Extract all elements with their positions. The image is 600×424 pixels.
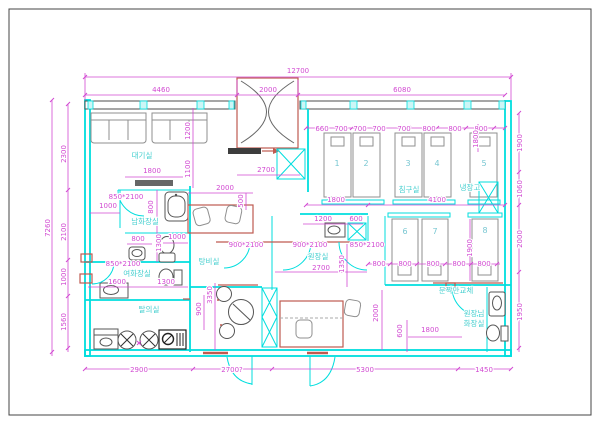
room-label-director-toilet: 원장님: [464, 308, 485, 318]
dim-left-seg: 2100: [60, 223, 68, 241]
bed-number: 1: [334, 159, 339, 168]
office-desk: [280, 299, 361, 347]
room-label-refrigerator: 냉장고: [460, 182, 481, 192]
dim-right-seg: 1900: [516, 134, 524, 152]
duct-box: [348, 223, 366, 240]
folding-partition: [262, 288, 277, 347]
sofa: [152, 113, 207, 143]
dim-mens: 800: [131, 235, 144, 243]
washing-machine: [140, 331, 158, 349]
cabinet: [94, 329, 118, 349]
dim-bed-mid: 800: [398, 260, 411, 268]
office-sink: [325, 223, 345, 237]
room-label-director-office: 원장실: [308, 251, 329, 261]
bathtub: [165, 192, 188, 221]
dim-mens-v: 1300: [155, 234, 163, 252]
room-label-waiting: 대기실: [132, 150, 153, 160]
dim-office-door: 900*2100: [293, 241, 328, 249]
dim-womens-door: 850*2100: [106, 260, 141, 268]
room-label-director-toilet: 화장실: [464, 318, 485, 328]
room-label-womens-toilet: 여화장실: [123, 268, 151, 278]
dim-bed-mid: 800: [372, 260, 385, 268]
dim-mens-v: 800: [147, 200, 155, 213]
dim-desk: 2000: [216, 184, 234, 192]
dim-bed-top: 700: [372, 125, 385, 133]
dim-toilet: 1800: [421, 326, 439, 334]
dim-womens: 1600: [108, 278, 126, 286]
dim-right-seg: 1950: [516, 303, 524, 321]
dim-bedding: 4100: [428, 196, 446, 204]
dim-left-seg: 2300: [60, 145, 68, 163]
room-label-mens-toilet: 남화장실: [131, 216, 159, 226]
dim-hall-v: 2000: [372, 304, 380, 322]
dim-top-right: 6080: [393, 86, 411, 94]
dim-bed-top: 800: [448, 125, 461, 133]
dim-bed-mid: 800: [426, 260, 439, 268]
dim-left-overall: 7260: [44, 219, 52, 237]
dim-shaft: 600: [349, 215, 362, 223]
dim-bottom-seg: 2700?: [221, 366, 243, 374]
dim-bottom-seg: 1450: [475, 366, 493, 374]
dim-waiting-v: 1200: [184, 122, 192, 140]
dim-waiting: 1800: [143, 167, 161, 175]
room-label-pantry: 탕비실: [199, 256, 220, 266]
dim-office-v: 1350: [338, 255, 346, 273]
dim-bed-top: 660: [315, 125, 328, 133]
room-label-bedding: 침구실: [399, 184, 420, 194]
dim-bottom-seg: 2900: [130, 366, 148, 374]
dim-bed-top: 700: [334, 125, 347, 133]
bed-number: 6: [402, 227, 407, 236]
dim-mens: 1000: [168, 233, 186, 241]
door-replace-note: 문짝만교체: [439, 285, 474, 295]
washbasin: [129, 247, 145, 260]
dim-lobby: 2700: [257, 166, 275, 174]
bed-number: 7: [432, 227, 437, 236]
dim-bed-top: 700: [397, 125, 410, 133]
dim-sink: 1200: [314, 215, 332, 223]
dim-top-left: 4460: [152, 86, 170, 94]
dim-womens: 1300: [157, 278, 175, 286]
sofa: [91, 113, 146, 143]
bed-number: 2: [363, 159, 368, 168]
dim-bed-top: 700: [353, 125, 366, 133]
dim-office: 2700: [312, 264, 330, 272]
dim-mens-door: 850*2100: [109, 193, 144, 201]
dim-waiting-v: 1100: [184, 160, 192, 178]
bed-number: 5: [481, 159, 486, 168]
dim-left-seg: 1560: [60, 313, 68, 331]
dim-bed5-depth: 1800: [472, 130, 480, 148]
dim-bed-mid: 800: [452, 260, 465, 268]
room-label-changing: 탈의실: [139, 304, 160, 314]
washing-machine: [118, 331, 136, 349]
dim-bottom-seg: 5300: [356, 366, 374, 374]
consult-desk: [188, 205, 253, 233]
bed-number: 3: [405, 159, 410, 168]
floor-plan-drawing: 12700 4460 2000 6080 7260 2300 2100 1000…: [0, 0, 600, 424]
dim-bed-mid: 800: [477, 260, 490, 268]
dim-bed-top: 800: [422, 125, 435, 133]
dim-changing-v: 3350: [206, 286, 214, 304]
dim-toilet-v: 600: [396, 324, 404, 337]
table-and-stools: [217, 287, 254, 339]
dim-changing-v: 900: [195, 302, 203, 315]
dim-top-overall: 12700: [287, 67, 309, 75]
shoe-cabinet: [277, 149, 305, 179]
dim-mens: 1000: [99, 202, 117, 210]
dim-right-seg: 2000: [516, 230, 524, 248]
dim-desk-v: 500: [237, 194, 245, 207]
bed-number: 4: [434, 159, 439, 168]
dim-pantry-door: 900*2100: [229, 241, 264, 249]
dim-right-seg: 1060: [516, 180, 524, 198]
dim-top-center: 2000: [259, 86, 277, 94]
dim-left-seg: 1000: [60, 268, 68, 286]
dim-bedding: 1800: [327, 196, 345, 204]
dim-storage-door: 850*2100: [350, 241, 385, 249]
kitchen-unit: [159, 330, 186, 349]
dim-bed8-depth: 1900: [466, 239, 474, 257]
bed-number: 8: [482, 226, 487, 235]
floor-plan-sheet: 12700 4460 2000 6080 7260 2300 2100 1000…: [0, 0, 600, 424]
